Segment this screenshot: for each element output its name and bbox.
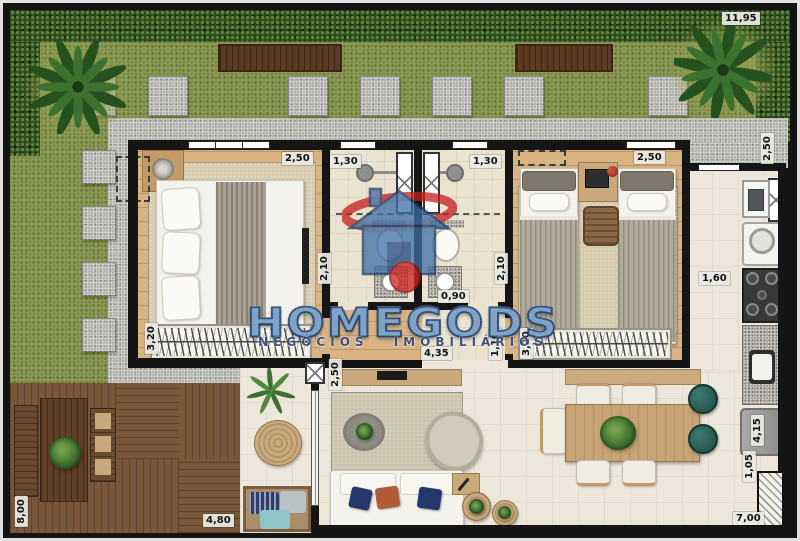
palm-tree-icon xyxy=(674,22,772,118)
stepping-stone xyxy=(82,318,116,352)
wardrobe-bedroom1 xyxy=(150,324,312,360)
toilet-tank xyxy=(430,220,464,228)
wood-deck-patch xyxy=(117,383,179,459)
dimension-label: 1,05 xyxy=(743,451,756,482)
dimension-label: 4,35 xyxy=(421,347,452,360)
shelf-niche xyxy=(95,459,111,475)
wall xyxy=(414,148,422,310)
decor-red xyxy=(607,166,618,177)
bed-duvet xyxy=(520,216,578,342)
bath2-window xyxy=(452,141,488,149)
garden-paver xyxy=(288,76,328,116)
hall-opening xyxy=(422,360,508,368)
wall xyxy=(778,163,786,473)
garden-paver xyxy=(148,76,188,116)
bedroom2-window xyxy=(626,141,676,149)
bed-duvet xyxy=(618,216,676,342)
lamp xyxy=(152,158,174,180)
bedroom1-window xyxy=(188,141,270,149)
sliding-door xyxy=(311,390,319,506)
table-centerpiece xyxy=(600,416,636,450)
wall xyxy=(330,360,422,368)
bed-pillow xyxy=(161,275,201,321)
kitchen-sink-basin xyxy=(752,354,772,380)
bed-duvet xyxy=(214,182,266,330)
walkway-deck xyxy=(108,366,240,384)
garden-paver xyxy=(360,76,400,116)
terrace-rattan-rug xyxy=(254,420,302,466)
floor-plan-image: HOMEGODS NEGÓCIOS IMOBILIÁRIOS 11,95 2,5… xyxy=(0,0,800,541)
shelf-niche xyxy=(95,413,111,429)
terrace-plant-icon xyxy=(244,366,298,416)
headboard-cushion xyxy=(522,171,576,191)
dimension-label: 2,50 xyxy=(761,133,774,164)
wall xyxy=(311,525,788,535)
basket xyxy=(583,206,619,246)
garden-paver xyxy=(504,76,544,116)
shower-arm xyxy=(374,171,396,174)
living-plant xyxy=(356,423,373,440)
bed-pillow xyxy=(161,231,201,275)
washer-door xyxy=(748,189,764,211)
tv xyxy=(377,371,407,380)
dimension-label: 0,90 xyxy=(438,290,469,303)
teal-chair xyxy=(688,424,718,454)
deck-plant xyxy=(49,437,81,469)
dimension-label: 11,95 xyxy=(722,12,760,25)
pillar xyxy=(305,362,325,384)
tv-bedroom1 xyxy=(302,228,309,284)
bath1-window xyxy=(340,141,376,149)
burner-small xyxy=(757,290,767,300)
dimension-label: 2,50 xyxy=(282,152,313,165)
shower-glass-door xyxy=(396,152,413,214)
kitchen-window xyxy=(698,164,740,171)
dimension-label: 4,15 xyxy=(751,415,764,446)
wood-planter xyxy=(515,44,613,72)
dimension-label: 4,80 xyxy=(203,514,234,527)
bedroom2-door xyxy=(505,318,513,354)
toilet xyxy=(432,228,460,262)
palm-tree-icon xyxy=(30,40,126,134)
stepping-stone xyxy=(82,150,116,184)
dimension-label: 3,20 xyxy=(520,328,533,359)
pillow-orange xyxy=(375,486,401,510)
burner xyxy=(765,272,778,285)
dimension-label: 1,60 xyxy=(699,272,730,285)
dimension-label: 3,20 xyxy=(145,323,158,354)
bath2-door xyxy=(468,302,498,310)
shelf-niche xyxy=(95,436,111,452)
washer-lid xyxy=(749,228,775,254)
burner xyxy=(765,303,778,316)
shower-head xyxy=(446,164,464,182)
wardrobe-bedroom2 xyxy=(518,328,672,360)
dimension-label: 2,50 xyxy=(634,151,665,164)
dimension-label: 8,00 xyxy=(15,496,28,527)
stepping-stone xyxy=(82,206,116,240)
dining-chair xyxy=(622,460,656,486)
deck-bench xyxy=(14,405,38,497)
bed-pillow xyxy=(627,193,667,211)
stepping-stone xyxy=(82,262,116,296)
shower-partition xyxy=(336,213,414,215)
headboard-cushion xyxy=(620,171,674,191)
dimension-label: 2,10 xyxy=(495,253,508,284)
shower-partition xyxy=(422,213,500,215)
bath1-door xyxy=(338,302,368,310)
wood-planter xyxy=(218,44,342,72)
burner xyxy=(746,272,759,285)
pillow-navy xyxy=(348,486,373,511)
radio xyxy=(585,169,609,188)
bedroom1-door xyxy=(322,318,330,354)
dining-chair xyxy=(576,460,610,486)
toilet xyxy=(376,228,404,262)
bed-pillow xyxy=(529,193,569,211)
wall xyxy=(682,148,690,368)
toilet-tank xyxy=(372,220,406,228)
pillow-navy xyxy=(417,487,443,511)
shower-glass-door xyxy=(423,152,440,214)
dimension-label: 1,10 xyxy=(489,329,502,360)
dimension-label: 1,30 xyxy=(330,155,361,168)
dining-chair xyxy=(540,408,567,454)
bath-sink-basin xyxy=(435,272,455,292)
dimension-label: 1,30 xyxy=(470,155,501,168)
dimension-label: 2,10 xyxy=(318,253,331,284)
dimension-label: 2,50 xyxy=(329,359,342,390)
pouf-plant xyxy=(498,506,511,519)
bed-pillow xyxy=(161,187,202,232)
teal-chair xyxy=(688,384,718,414)
wall xyxy=(128,358,330,368)
burner xyxy=(746,303,759,316)
curtain-outline xyxy=(518,150,566,166)
pouf-plant xyxy=(469,499,484,514)
dimension-label: 7,00 xyxy=(733,512,764,525)
wall xyxy=(128,140,138,368)
wall xyxy=(508,360,690,368)
garden-paver xyxy=(432,76,472,116)
bath-sink-basin xyxy=(381,272,401,292)
teal-cushion xyxy=(260,510,290,529)
